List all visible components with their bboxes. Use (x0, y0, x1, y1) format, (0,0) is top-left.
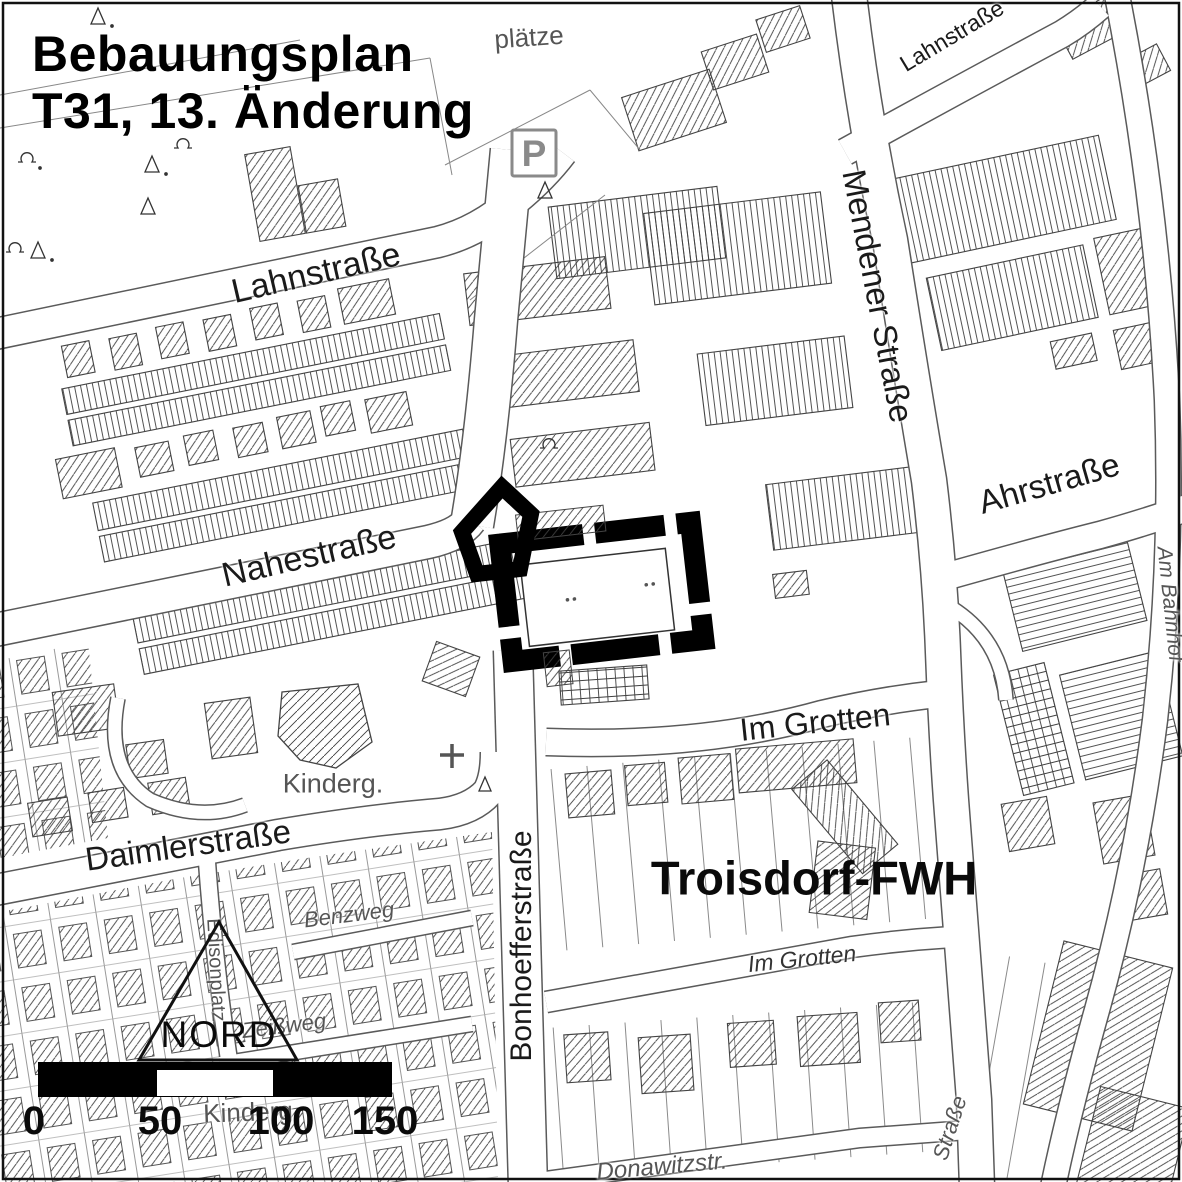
garage-row (559, 665, 649, 705)
scale-segment (156, 1070, 274, 1097)
poi-label-plaetze: plätze (493, 22, 564, 53)
parking-letter: P (522, 133, 547, 175)
building (28, 797, 73, 837)
scale-tick: 100 (248, 1099, 315, 1144)
map-title-line2: T31, 13. Änderung (32, 83, 474, 140)
scale-segment (274, 1070, 392, 1097)
scale-bar-segments (38, 1070, 392, 1097)
map-page: Bebauungsplan T31, 13. Änderung Troisdor… (0, 0, 1182, 1182)
building (422, 641, 480, 696)
church-cross-icon (440, 744, 464, 768)
building (701, 34, 769, 90)
kindergarten-building (278, 684, 372, 768)
scale-tick: 50 (138, 1099, 183, 1144)
plan-building (520, 548, 674, 646)
map-title: Bebauungsplan T31, 13. Änderung (32, 26, 474, 140)
building (1001, 796, 1055, 851)
scale-tick: 150 (352, 1099, 419, 1144)
street-label-bonhoefferstrasse: Bonhoefferstraße (507, 830, 537, 1061)
map-title-line1: Bebauungsplan (32, 26, 474, 83)
building (298, 179, 346, 233)
building (204, 697, 257, 759)
region-label: Troisdorf-FWH (651, 851, 977, 906)
building (245, 147, 306, 242)
north-label: NORD (161, 1014, 278, 1056)
poi-label-kindergarten: Kinderg. (283, 771, 384, 798)
building (756, 6, 810, 53)
scale-bar-strip (38, 1062, 392, 1070)
scale-segment (38, 1070, 156, 1097)
scale-bar: 0 50 100 150 (38, 1062, 392, 1097)
building (88, 787, 128, 822)
scale-tick: 0 (23, 1099, 45, 1144)
